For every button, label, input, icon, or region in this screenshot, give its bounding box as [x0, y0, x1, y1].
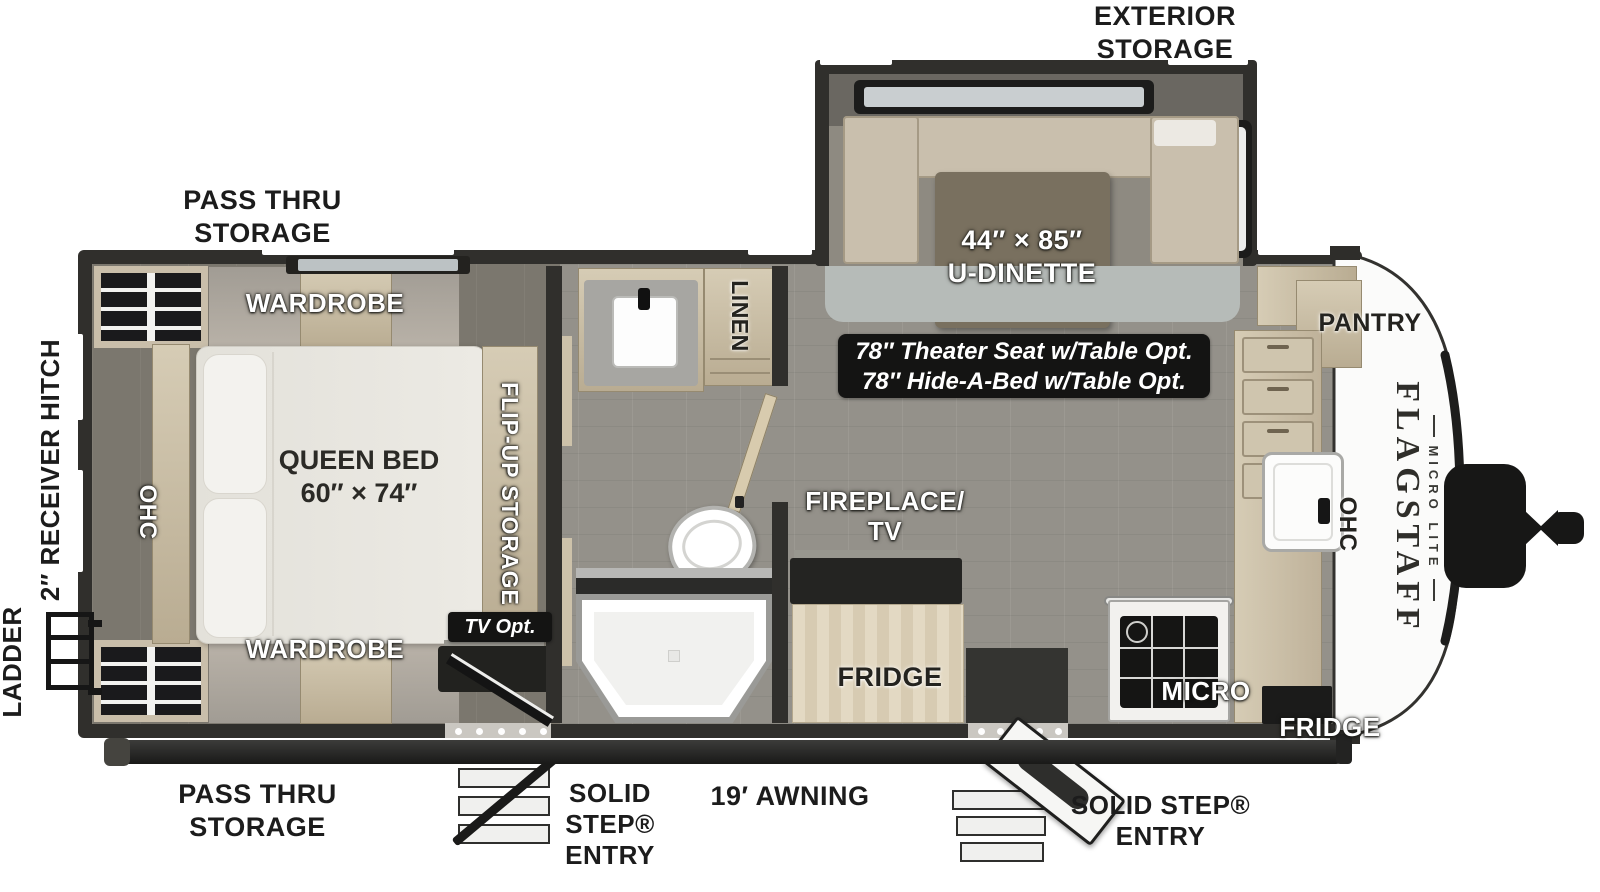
solid-step-line: STEP®	[540, 809, 680, 840]
fireplace-tv-cabinet	[790, 558, 962, 604]
bedroom-vent-glass	[298, 259, 458, 271]
shower-drain	[668, 650, 680, 662]
wardrobe-bottom-label: WARDROBE	[205, 634, 445, 664]
shelf-lines	[101, 273, 201, 341]
pass-thru-top-label: PASS THRU STORAGE	[135, 184, 390, 250]
shower-pan	[576, 594, 772, 723]
exterior-storage-label: EXTERIOR STORAGE	[1040, 0, 1290, 66]
ladder-icon	[46, 612, 94, 690]
exterior-storage-line: EXTERIOR	[1040, 0, 1290, 33]
pass-thru-line: PASS THRU	[130, 778, 385, 811]
solid-step-line: ENTRY	[1058, 821, 1263, 852]
pass-thru-line: STORAGE	[130, 811, 385, 844]
exterior-storage-line: STORAGE	[1040, 33, 1290, 66]
queen-bed-line: QUEEN BED	[234, 444, 484, 477]
queen-bed-label: QUEEN BED 60″ × 74″	[234, 444, 484, 510]
kitchen-faucet	[1318, 498, 1330, 524]
ohc-bedroom-label: OHC	[134, 472, 160, 552]
step-right-tread	[960, 842, 1044, 862]
hitch-coupler	[1550, 512, 1584, 544]
vanity-faucet	[638, 288, 650, 310]
pass-thru-line: STORAGE	[135, 217, 390, 250]
shower-door-bar	[576, 578, 772, 594]
rear-shelf-bottom	[94, 640, 208, 722]
dinette-bench-left	[843, 116, 919, 264]
micro-label: MICRO	[1106, 676, 1306, 706]
awning-end-left	[104, 738, 130, 766]
bed-pillow-bottom	[203, 498, 267, 638]
solid-step-right-label: SOLID STEP® ENTRY	[1058, 790, 1263, 852]
bedroom-bath-wall	[546, 266, 562, 723]
slideout-rear-window-glass	[864, 87, 1144, 107]
solid-step-line: SOLID STEP®	[1058, 790, 1263, 821]
linen-drawer-line-2	[710, 372, 770, 374]
awning-bar	[108, 740, 1348, 764]
kitchen-drawer	[1242, 337, 1314, 373]
pass-thru-line: PASS THRU	[135, 184, 390, 217]
awning-label: 19′ AWNING	[680, 780, 900, 813]
dinette-label: 44″ × 85″ U-DINETTE	[912, 224, 1132, 290]
brand-subtitle: MICRO LITE	[1427, 415, 1442, 600]
dinette-option-line: 78″ Theater Seat w/Table Opt.	[838, 337, 1210, 367]
solid-step-line: SOLID	[540, 778, 680, 809]
burner-icon	[1126, 621, 1148, 643]
queen-bed-size: 60″ × 74″	[234, 477, 484, 510]
dinette-size: 44″ × 85″	[912, 224, 1132, 257]
fireplace-line: FIREPLACE/	[775, 486, 995, 516]
kitchen-drawer	[1242, 379, 1314, 415]
ladder-label: LADDER	[0, 607, 26, 717]
entry-mat-dots-left	[455, 728, 547, 735]
shelf-lines	[101, 647, 201, 715]
wardrobe-top-label: WARDROBE	[205, 288, 445, 318]
bath-living-wall-upper	[772, 266, 788, 386]
dinette-option-line: 78″ Hide-A-Bed w/Table Opt.	[838, 367, 1210, 397]
cap-joint-top	[1330, 246, 1360, 260]
fridge-main-label: FRIDGE	[790, 662, 990, 693]
fireplace-tv-label: FIREPLACE/ TV	[775, 486, 995, 546]
toilet-seat	[677, 514, 746, 575]
linen-label: LINEN	[727, 261, 753, 371]
brand-title: FLAGSTAFF	[1389, 381, 1427, 635]
floorplan-canvas: 78″ Theater Seat w/Table Opt. 78″ Hide-A…	[0, 0, 1600, 892]
ohc-kitchen-label: OHC	[1335, 484, 1361, 564]
propane-cover	[1444, 464, 1526, 588]
bath-wall-panel-1	[562, 336, 572, 446]
dinette-options-box: 78″ Theater Seat w/Table Opt. 78″ Hide-A…	[838, 334, 1210, 398]
shower-top-trim	[576, 568, 772, 578]
step-right-tread	[956, 816, 1046, 836]
brand-logo: MICRO LITE FLAGSTAFF	[1387, 348, 1443, 668]
flip-up-storage-label: FLIP-UP STORAGE	[497, 349, 523, 639]
fridge-front-label: FRIDGE	[1230, 712, 1430, 742]
solid-step-left-label: SOLID STEP® ENTRY	[540, 778, 680, 871]
ladder-mount-bottom	[88, 688, 102, 695]
pantry-label: PANTRY	[1295, 308, 1445, 339]
tv-line: TV	[775, 516, 995, 546]
slideout-window-strip-left	[820, 57, 892, 65]
ladder-mount-top	[88, 620, 102, 627]
dinette-name: U-DINETTE	[912, 257, 1132, 290]
solid-step-line: ENTRY	[540, 840, 680, 871]
bath-wall-panel-2	[562, 538, 572, 666]
bath-door-handle	[735, 496, 744, 508]
dinette-bench-cushion	[1154, 120, 1216, 146]
fireplace-tv-trim	[794, 550, 958, 558]
rear-shelf-top	[94, 266, 208, 348]
brand-subtitle-text: MICRO LITE	[1427, 445, 1442, 570]
pass-thru-bottom-label: PASS THRU STORAGE	[130, 778, 385, 844]
receiver-hitch-label: 2″ RECEIVER HITCH	[36, 330, 64, 610]
